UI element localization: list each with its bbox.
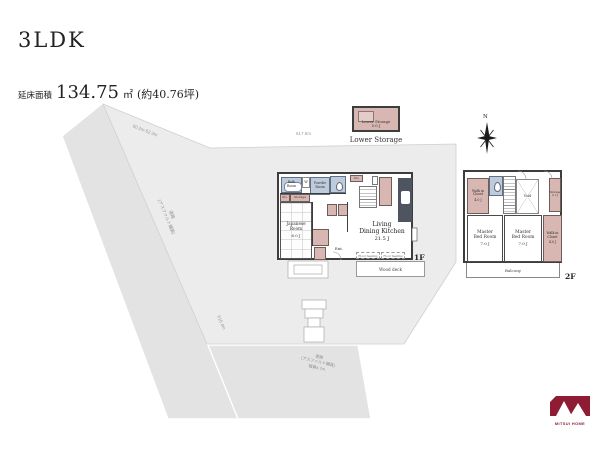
lower-storage-box: Lower Storage 5.0 J [352,106,400,132]
master-bedroom-left: Master Bed Room 7.0 J [467,215,503,262]
stairs-1f [359,186,377,208]
toilet-2f-icon [494,182,501,192]
floor-area-unit: ㎡ [123,86,133,101]
washer: W [302,177,310,188]
entrance-label: Ent. [331,246,347,251]
floor1-tag: 1F [414,253,425,262]
storage-2f: Storage 2.1 J [549,178,561,212]
mitsui-home-logo-icon [548,394,592,420]
stairs-2f [503,176,516,214]
void-area: Void [516,179,539,214]
floor-heating-right: Floor heating [381,252,405,259]
japanese-room: Japanese Room 6.0 J [280,202,312,259]
floor2-tag: 2F [565,272,576,281]
bath-room: Bath Room [281,177,302,193]
hall-closet-a [327,204,337,216]
compass-icon [476,121,498,155]
walkin-closet-2f-right: Walk in Closet 4.0 J [543,215,562,262]
floor-area-label: 延床面積 [18,89,52,101]
toilet-room-2f [489,176,503,196]
storage-1f: Storage [290,194,310,202]
wood-deck: Wood deck [356,261,425,277]
storage-top-1f: Sto. [350,175,363,182]
floor-area-value: 134.75 [56,82,119,103]
kitchen-sink-icon [401,191,410,204]
closet-japanese [312,229,329,246]
floor-area-tsubo: (約40.76坪) [137,86,199,102]
page-title: 3LDK [18,28,86,52]
wall-1f-a [280,193,346,194]
compass-north-label: N [483,114,488,120]
wall-1f-b [312,202,314,246]
lower-storage-caption: Lower Storage [344,136,408,144]
floor-area-line: 延床面積 134.75 ㎡ (約40.76坪) [18,82,199,103]
mitsui-home-logo-text: MITSUI HOME [546,421,594,426]
floorplan-page: 3LDK 延床面積 134.75 ㎡ (約40.76坪) 60.2m 62.3m… [0,0,600,450]
shoe-box [314,247,326,260]
balcony: Balcony [466,263,560,278]
toilet-room-1f [330,176,346,193]
lower-storage-room-label: Lower Storage 5.0 J [354,120,398,129]
fridge-icon [372,176,378,185]
wall-1f-c [347,202,349,232]
dim-top: 617.5m [296,131,311,136]
storage-small-1f: Sto. [280,194,290,202]
walkin-closet-2f-left: Walk in Closet 4.0 J [467,178,489,214]
master-bedroom-right: Master Bed Room 7.0 J [504,215,542,262]
toilet-icon [336,182,343,191]
ldk-label: Living Dining Kitchen 21.5 J [354,221,410,242]
floor2-plan: Walk in Closet 4.0 J Void Storage 2.1 J … [463,170,562,263]
pantry-storage-1f [379,177,392,206]
kitchen-counter [398,178,412,222]
floor-heating-left: Floor heating [356,252,380,259]
floor1-plan: Bath Room W Powder Room Sto. Sto. [277,172,413,260]
